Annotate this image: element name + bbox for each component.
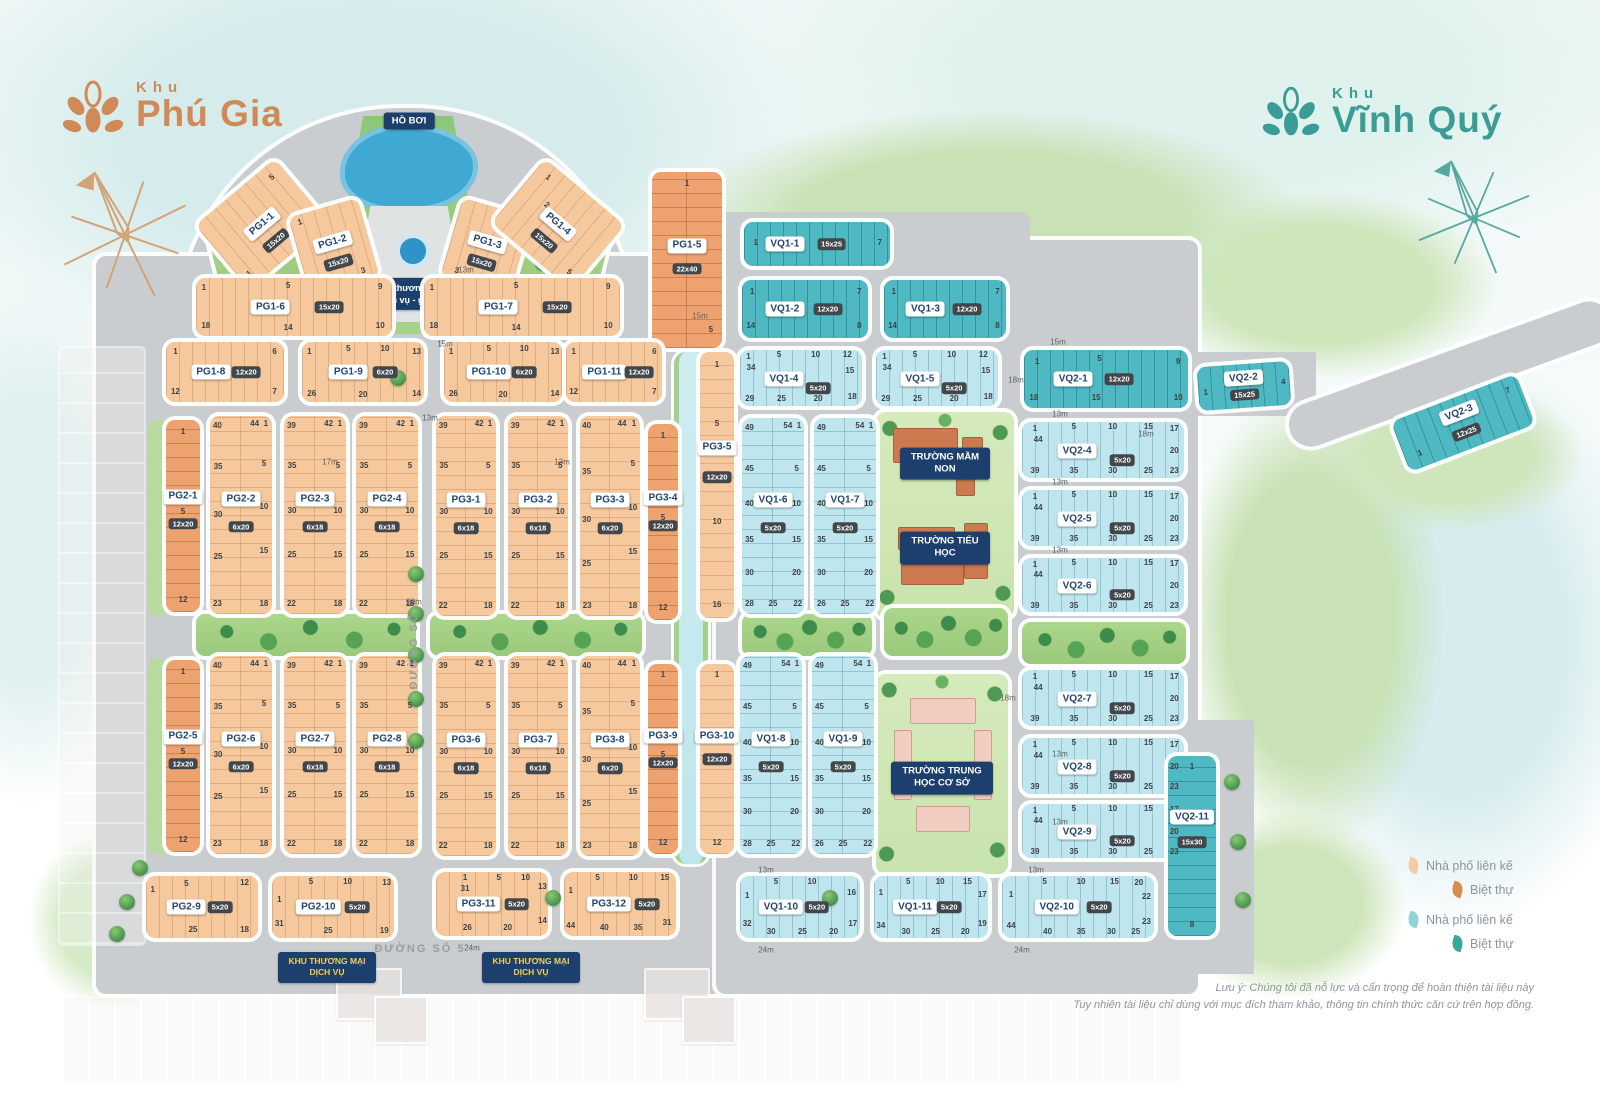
compass-rose-icon (1388, 132, 1560, 304)
plot-number: 5 (906, 878, 910, 886)
plot-number: 10 (1077, 878, 1086, 886)
lot-size-tag: 15x30 (1178, 837, 1207, 849)
block-pg3-10: PG3-1012x20112 (700, 664, 734, 854)
plot-number: 25 (839, 840, 848, 848)
plot-number: 10 (862, 739, 871, 747)
plot-number: 39 (359, 422, 368, 430)
lot-size-tag: 12x20 (649, 757, 678, 769)
plot-number: 5 (336, 462, 340, 470)
plot-number: 5 (913, 351, 917, 359)
plot-number: 1 (463, 874, 467, 882)
plot-number: 5 (1072, 423, 1076, 431)
plot-number: 14 (538, 917, 547, 925)
lot-size-tag: 15x25 (1230, 388, 1260, 401)
future-plots-left (58, 346, 146, 946)
future-buildings (630, 956, 750, 1048)
plot-number: 1 (685, 180, 689, 188)
plot-number: 15 (484, 552, 493, 560)
block-label: PG3-4 (644, 491, 683, 506)
plot-number: 8 (995, 322, 999, 330)
plot-number: 15 (660, 874, 669, 882)
plot-number: 30 (1108, 535, 1117, 543)
plot-number: 25 (931, 928, 940, 936)
plot-number: 18 (201, 322, 210, 330)
plot-number: 10 (1108, 671, 1117, 679)
block-pg2-6: PG2-66x2040441355301025152318 (210, 656, 272, 854)
lot-size-tag: 5x20 (1110, 835, 1135, 847)
plot-number: 10 (520, 345, 529, 353)
plot-number: 25 (1131, 928, 1140, 936)
block-label: VQ2-2 (1224, 369, 1264, 387)
plot-number: 31 (663, 919, 672, 927)
plot-number: 49 (817, 424, 826, 432)
plot-number: 5 (184, 880, 188, 888)
road-width-dimension: 24m (464, 944, 480, 953)
plot-number: 10 (808, 878, 817, 886)
block-pg1-11: PG1-1112x2016127 (566, 342, 662, 402)
block-label: PG2-8 (368, 732, 407, 747)
plot-number: 35 (1069, 467, 1078, 475)
block-vq2-4: VQ2-45x201445101517203935302523 (1022, 422, 1184, 478)
plot-number: 28 (745, 600, 754, 608)
plot-number: 10 (376, 322, 385, 330)
road-width-dimension: 15m (692, 312, 708, 321)
plot-number: 49 (745, 424, 754, 432)
block-label: VQ1-4 (764, 372, 803, 387)
plot-number: 17 (1170, 741, 1179, 749)
plot-number: 35 (1069, 848, 1078, 856)
plot-number: 25 (1144, 715, 1153, 723)
block-label: PG3-2 (519, 493, 558, 508)
plot-number: 15 (333, 791, 342, 799)
plot-number: 25 (777, 395, 786, 403)
plot-number: 25 (1144, 467, 1153, 475)
plot-number: 12 (659, 839, 668, 847)
plot-number: 25 (288, 791, 297, 799)
commercial-service-label: KHU THƯƠNG MẠI DỊCH VỤ (482, 952, 580, 983)
plot-number: 35 (1069, 715, 1078, 723)
plot-number: 34 (883, 364, 892, 372)
plot-number: 15 (628, 548, 637, 556)
plot-number: 1 (1417, 449, 1424, 458)
plot-number: 29 (745, 395, 754, 403)
block-label: VQ1-9 (824, 732, 863, 747)
block-label: VQ1-5 (900, 372, 939, 387)
plot-number: 18 (405, 600, 414, 608)
legend-label: Biệt thự (1470, 937, 1514, 951)
block-label: VQ2-8 (1058, 760, 1097, 775)
plot-number: 39 (1031, 602, 1040, 610)
block-pg3-11: PG3-115x2013151013262014 (436, 872, 548, 936)
plot-number: 5 (1072, 739, 1076, 747)
plot-number: 25 (511, 792, 520, 800)
block-label: VQ2-11 (1170, 810, 1214, 825)
plot-number: 7 (995, 288, 999, 296)
block-label: PG3-3 (591, 493, 630, 508)
plot-number: 13 (538, 883, 547, 891)
plot-number: 23 (1170, 848, 1179, 856)
plot-number: 1 (181, 668, 185, 676)
plot-number: 42 (475, 660, 484, 668)
plot-number: 10 (259, 503, 268, 511)
plot-number: 30 (817, 569, 826, 577)
plot-number: 12 (843, 351, 852, 359)
park (196, 614, 416, 656)
plot-number: 12 (179, 836, 188, 844)
plot-number: 1 (277, 896, 281, 904)
plot-number: 23 (1170, 783, 1179, 791)
plot-number: 1 (488, 420, 492, 428)
plot-number: 10 (628, 504, 637, 512)
plot-number: 7 (1504, 386, 1511, 395)
block-label: VQ1-11 (893, 900, 937, 915)
plot-number: 26 (817, 600, 826, 608)
plot-number: 30 (1108, 602, 1117, 610)
block-pg1-10: PG1-106x20151013262014 (444, 342, 562, 402)
plot-number: 1 (410, 660, 414, 668)
block-label: PG1-7 (479, 300, 518, 315)
plot-number: 42 (475, 420, 484, 428)
plot-number: 12 (171, 388, 180, 396)
plot-number: 39 (1031, 848, 1040, 856)
tree-icon (1224, 774, 1240, 790)
plot-number: 1 (430, 284, 434, 292)
plot-number: 35 (1077, 928, 1086, 936)
plot-number: 9 (1176, 358, 1180, 366)
plot-number: 4 (1281, 378, 1286, 386)
lot-size-tag: 5x20 (761, 522, 786, 534)
plot-number: 40 (815, 739, 824, 747)
plot-number: 12 (659, 604, 668, 612)
plot-number: 20 (790, 808, 799, 816)
plot-number: 1 (560, 420, 564, 428)
lot-size-tag: 5x20 (831, 761, 856, 773)
plot-number: 25 (913, 395, 922, 403)
lot-size-tag: 12x20 (703, 753, 732, 765)
lot-size-tag: 5x20 (833, 522, 858, 534)
block-vq2-5: VQ2-55x201445101517203935302523 (1022, 490, 1184, 546)
plot-number: 26 (463, 924, 472, 932)
lot-size-tag: 15x20 (543, 301, 572, 313)
plot-number: 25 (214, 553, 223, 561)
plot-number: 5 (1072, 559, 1076, 567)
plot-number: 35 (745, 536, 754, 544)
plot-number: 18 (628, 602, 637, 610)
plot-number: 9 (606, 283, 610, 291)
plot-number: 42 (547, 660, 556, 668)
school-building (916, 806, 971, 832)
logo-name: Vĩnh Quý (1332, 101, 1502, 140)
plot-number: 5 (558, 702, 562, 710)
plot-number: 1 (1035, 358, 1039, 366)
plot-number: 15 (405, 791, 414, 799)
plot-number: 30 (582, 516, 591, 524)
plot-number: 44 (618, 420, 627, 428)
lot-size-tag: 15x20 (315, 301, 344, 313)
plot-number: 30 (511, 748, 520, 756)
legend-leaf-icon (1450, 881, 1465, 899)
plot-number: 5 (268, 174, 277, 183)
plot-number: 39 (1031, 783, 1040, 791)
block-vq1-6: VQ1-65x2049541455401035153020282522 (742, 418, 804, 614)
plot-number: 1 (753, 239, 757, 247)
plot-number: 12 (179, 596, 188, 604)
plot-number: 22 (439, 602, 448, 610)
plot-number: 5 (181, 748, 185, 756)
plot-number: 30 (214, 751, 223, 759)
plot-number: 30 (360, 747, 369, 755)
plot-number: 15 (1144, 805, 1153, 813)
park (430, 614, 642, 656)
block-pg3-2: PG3-26x1839421355301025152218 (508, 416, 568, 616)
plot-number: 5 (286, 282, 290, 290)
plot-number: 42 (324, 420, 333, 428)
lot-size-tag: 5x20 (208, 901, 233, 913)
plot-number: 20 (1134, 879, 1143, 887)
plot-number: 20 (1170, 828, 1179, 836)
plot-number: 18 (848, 393, 857, 401)
block-vq1-8: VQ1-85x2049541455401035153020282522 (740, 656, 802, 854)
block-label: VQ1-7 (826, 493, 865, 508)
block-label: VQ1-6 (754, 493, 793, 508)
plot-number: 5 (181, 508, 185, 516)
plot-number: 10 (259, 743, 268, 751)
plot-number: 5 (565, 268, 574, 277)
plot-number: 1 (797, 422, 801, 430)
plot-number: 30 (1108, 848, 1117, 856)
plot-number: 10 (1108, 491, 1117, 499)
plot-number: 17 (848, 920, 857, 928)
tree-icon (109, 926, 125, 942)
plot-number: 30 (1108, 783, 1117, 791)
plot-number: 45 (745, 465, 754, 473)
plot-number: 20 (1170, 695, 1179, 703)
lot-size-tag: 5x20 (1110, 770, 1135, 782)
plot-number: 35 (817, 536, 826, 544)
plot-number: 15 (556, 792, 565, 800)
school-campus-secondary: TRƯỜNG TRUNG HỌC CƠ SỞ (876, 674, 1008, 874)
block-label: VQ2-5 (1058, 512, 1097, 527)
block-label: VQ2-4 (1058, 444, 1097, 459)
plot-number: 23 (213, 600, 222, 608)
plot-number: 1 (449, 348, 453, 356)
plot-number: 15 (862, 775, 871, 783)
lot-size-tag: 6x20 (229, 521, 254, 533)
school-building (901, 564, 964, 585)
plot-number: 40 (743, 739, 752, 747)
block-label: VQ1-1 (765, 237, 804, 252)
plot-number: 1 (181, 428, 185, 436)
plot-number: 44 (1034, 817, 1043, 825)
lot-size-tag: 5x20 (937, 901, 962, 913)
plot-number: 7 (857, 288, 861, 296)
plot-number: 25 (1144, 602, 1153, 610)
plot-number: 22 (287, 600, 296, 608)
plot-number: 15 (405, 551, 414, 559)
lot-size-tag: 5x20 (504, 898, 529, 910)
road-width-dimension: 18m (1008, 376, 1024, 385)
plot-number: 20 (499, 391, 508, 399)
plot-number: 22 (287, 840, 296, 848)
leaf-logo-icon (62, 80, 124, 152)
plot-number: 20 (1170, 447, 1179, 455)
plot-number: 5 (336, 702, 340, 710)
lot-size-tag: 5x20 (1087, 901, 1112, 913)
plot-number: 1 (571, 348, 575, 356)
plot-number: 25 (798, 928, 807, 936)
plot-number: 10 (381, 345, 390, 353)
plot-number: 14 (412, 390, 421, 398)
plot-number: 15 (1144, 739, 1153, 747)
plot-number: 16 (847, 889, 856, 897)
plot-number: 12 (240, 879, 249, 887)
plot-number: 10 (521, 874, 530, 882)
lot-size-tag: 12x20 (649, 520, 678, 532)
plot-number: 23 (1170, 715, 1179, 723)
plot-number: 44 (1034, 436, 1043, 444)
plot-number: 35 (582, 468, 591, 476)
plot-number: 1 (867, 660, 871, 668)
plot-number: 10 (1174, 394, 1183, 402)
plot-number: 25 (1144, 848, 1153, 856)
block-pg2-4: PG2-46x1839421355301025152218 (356, 416, 418, 614)
plot-number: 15 (259, 787, 268, 795)
block-label: PG1-11 (582, 365, 626, 380)
plot-number: 25 (841, 600, 850, 608)
plot-number: 7 (878, 239, 882, 247)
plot-number: 10 (604, 322, 613, 330)
lot-size-tag: 5x20 (759, 761, 784, 773)
lot-size-tag: 12x25 (1451, 422, 1482, 443)
block-label: PG3-8 (591, 733, 630, 748)
block-vq2-1: VQ2-112x20159181510 (1024, 350, 1188, 408)
plot-number: 39 (1031, 715, 1040, 723)
plot-number: 5 (777, 351, 781, 359)
plot-number: 5 (1072, 671, 1076, 679)
plot-number: 1 (632, 660, 636, 668)
lot-size-tag: 5x20 (1110, 454, 1135, 466)
block-vq1-10: VQ1-105x201510163230252017 (740, 876, 860, 938)
plot-number: 10 (628, 744, 637, 752)
plot-number: 25 (439, 552, 448, 560)
park (1022, 622, 1186, 664)
plot-number: 10 (333, 507, 342, 515)
plot-number: 20 (829, 928, 838, 936)
plot-number: 10 (629, 874, 638, 882)
plot-number: 30 (767, 928, 776, 936)
lot-size-tag: 5x20 (1110, 702, 1135, 714)
plot-number: 42 (324, 660, 333, 668)
road-width-dimension: 13m (1052, 546, 1068, 555)
lot-size-tag: 12x20 (703, 471, 732, 483)
plot-number: 15 (864, 536, 873, 544)
school-campus-kindergarten-primary: TRƯỜNG MẦM NON TRƯỜNG TIỂU HỌC (876, 412, 1014, 618)
lot-size-tag: 15x25 (817, 238, 846, 250)
plot-number: 35 (214, 703, 223, 711)
legend-leaf-icon (1406, 857, 1421, 875)
plot-number: 1 (745, 892, 749, 900)
plot-number: 1 (661, 432, 665, 440)
block-label: VQ1-10 (759, 900, 803, 915)
plot-number: 44 (250, 420, 259, 428)
plot-number: 5 (774, 878, 778, 886)
plot-number: 8 (1190, 921, 1194, 929)
plot-number: 1 (1033, 561, 1037, 569)
plot-number: 1 (715, 361, 719, 369)
plot-number: 42 (547, 420, 556, 428)
legend-item: Nhà phố liên kế (1408, 858, 1513, 873)
block-vq2-8: VQ2-85x201445101517203935302523 (1022, 738, 1184, 794)
plot-number: 10 (1108, 805, 1117, 813)
block-vq1-3: VQ1-312x2017148 (884, 280, 1006, 338)
commercial-service-label: KHU THƯƠNG MẠI DỊCH VỤ (278, 952, 376, 983)
plot-number: 25 (582, 800, 591, 808)
plot-number: 9 (378, 283, 382, 291)
lot-size-tag: 5x20 (804, 901, 829, 913)
plot-number: 39 (511, 662, 520, 670)
plot-number: 10 (556, 508, 565, 516)
plot-number: 39 (1031, 535, 1040, 543)
road-width-dimension: 18m (1000, 694, 1016, 703)
plot-number: 17 (1170, 673, 1179, 681)
legend-item: Nhà phố liên kế (1408, 912, 1513, 927)
logo-vinh-quy: Khu Vĩnh Quý (1262, 86, 1502, 154)
plot-number: 20 (792, 569, 801, 577)
plot-number: 18 (333, 600, 342, 608)
block-vq2-7: VQ2-75x201445101517203935302523 (1022, 670, 1184, 726)
plot-number: 42 (396, 420, 405, 428)
plot-number: 22 (359, 840, 368, 848)
plot-number: 14 (550, 390, 559, 398)
plot-number: 22 (1142, 893, 1151, 901)
plot-number: 10 (1108, 739, 1117, 747)
plot-number: 30 (582, 756, 591, 764)
block-label: PG1-6 (251, 300, 290, 315)
plot-number: 31 (275, 920, 284, 928)
road-width-dimension: 24m (1014, 946, 1030, 955)
block-label: PG1-3 (467, 230, 509, 255)
plot-number: 5 (864, 703, 868, 711)
plot-number: 1 (1033, 741, 1037, 749)
plot-number: 1 (150, 886, 154, 894)
lot-size-tag: 6x18 (303, 761, 328, 773)
plot-number: 22 (791, 840, 800, 848)
plot-number: 44 (250, 660, 259, 668)
plot-number: 1 (173, 348, 177, 356)
school-label-mam-non: TRƯỜNG MẦM NON (900, 447, 990, 480)
plot-number: 1 (1203, 388, 1208, 396)
plot-number: 25 (1144, 783, 1153, 791)
plot-number: 1 (264, 660, 268, 668)
plot-number: 28 (743, 840, 752, 848)
plot-number: 30 (1108, 715, 1117, 723)
block-pg3-1: PG3-16x1839421355301025152218 (436, 416, 496, 616)
plot-number: 26 (307, 390, 316, 398)
plot-number: 1 (879, 889, 883, 897)
block-vq2-6: VQ2-65x201445101517203935302523 (1022, 558, 1184, 612)
plot-number: 35 (511, 702, 520, 710)
plot-number: 40 (817, 500, 826, 508)
plot-number: 18 (484, 842, 493, 850)
block-label: VQ1-8 (752, 732, 791, 747)
block-label: VQ1-2 (765, 302, 804, 317)
plot-number: 30 (1108, 467, 1117, 475)
plot-number: 1 (892, 288, 896, 296)
plot-number: 25 (767, 840, 776, 848)
plot-number: 35 (582, 708, 591, 716)
road-width-dimension: 13m (1028, 866, 1044, 875)
block-pg3-7: PG3-76x1839421355301025152218 (508, 656, 568, 856)
